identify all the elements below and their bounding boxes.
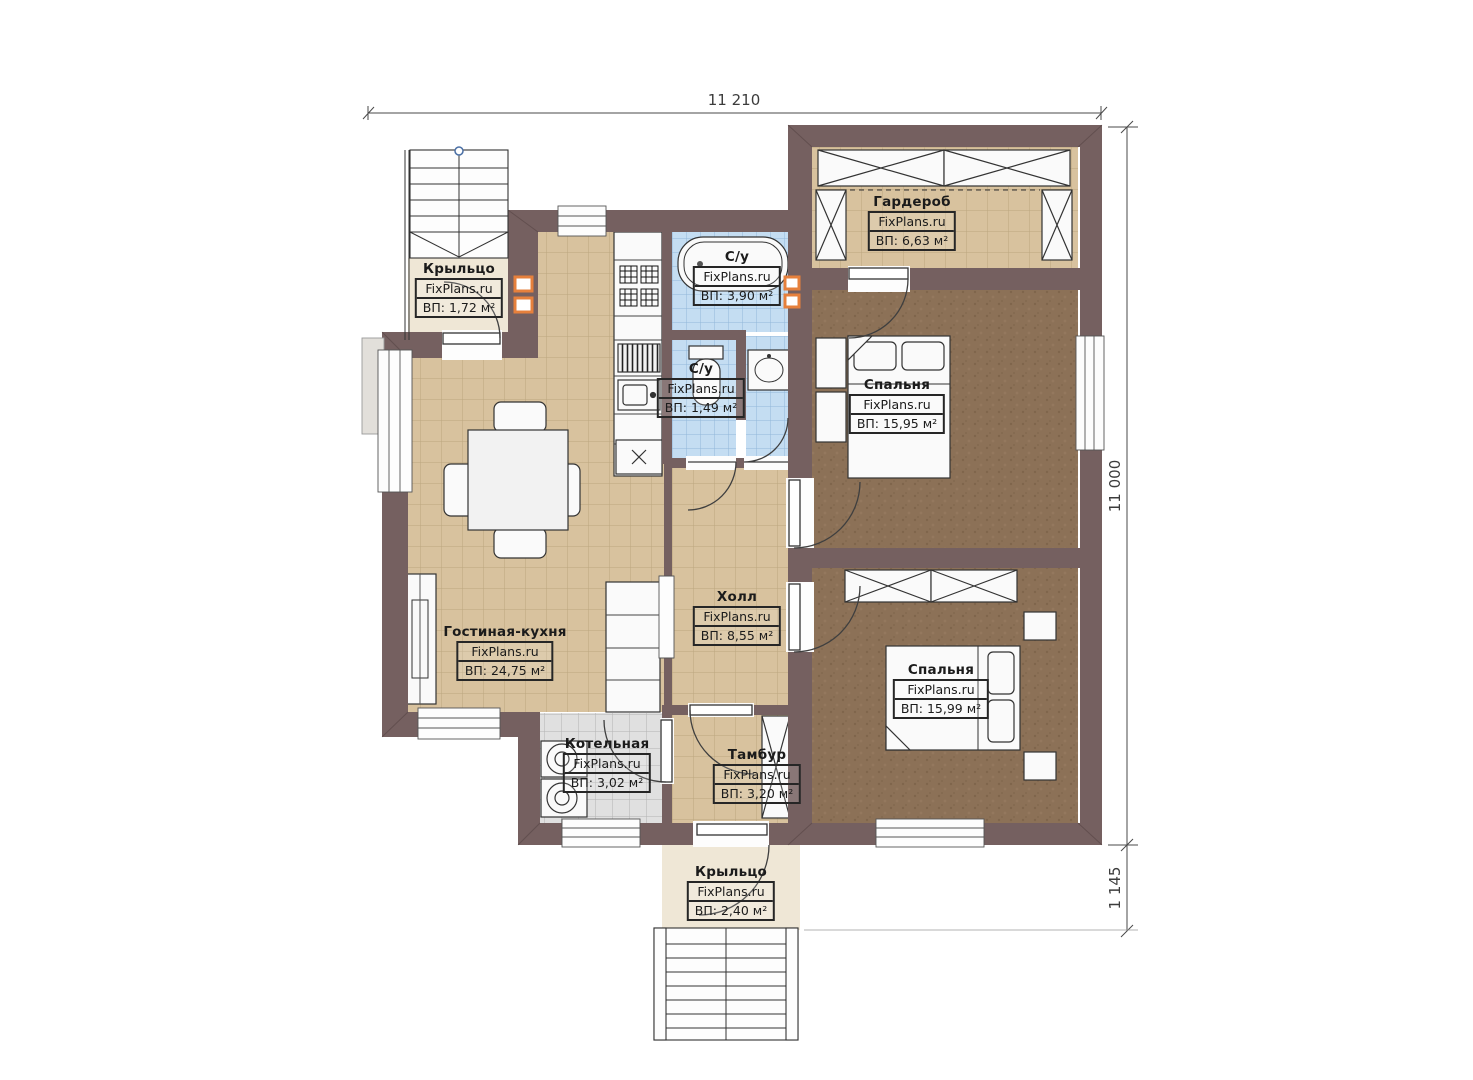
room-area: ВП: 3,20 м²: [715, 785, 799, 802]
room-name: Спальня: [908, 662, 974, 678]
room-info-box: FixPlans.ru ВП: 1,72 м²: [415, 278, 503, 318]
room-area: ВП: 1,49 м²: [659, 399, 743, 416]
room-area: ВП: 3,90 м²: [695, 287, 779, 304]
room-area: ВП: 2,40 м²: [689, 902, 773, 919]
room-label-living-kitchen: Гостиная-кухня FixPlans.ru ВП: 24,75 м²: [443, 624, 566, 681]
room-label-wc: С/у FixPlans.ru ВП: 1,49 м²: [657, 361, 745, 418]
room-label-bedroom-1: Спальня FixPlans.ru ВП: 15,95 м²: [849, 377, 945, 434]
room-label-porch-bottom: Крыльцо FixPlans.ru ВП: 2,40 м²: [687, 864, 775, 921]
room-name: Гостиная-кухня: [443, 624, 566, 640]
room-name: Холл: [717, 589, 757, 605]
room-info-box: FixPlans.ru ВП: 1,49 м²: [657, 378, 745, 418]
room-info-box: FixPlans.ru ВП: 3,20 м²: [713, 764, 801, 804]
room-label-bedroom-2: Спальня FixPlans.ru ВП: 15,99 м²: [893, 662, 989, 719]
brand-watermark: FixPlans.ru: [851, 396, 943, 415]
room-info-box: FixPlans.ru ВП: 15,95 м²: [849, 394, 945, 434]
room-label-porch-top: Крыльцо FixPlans.ru ВП: 1,72 м²: [415, 261, 503, 318]
room-name: Спальня: [864, 377, 930, 393]
room-info-box: FixPlans.ru ВП: 2,40 м²: [687, 881, 775, 921]
brand-watermark: FixPlans.ru: [565, 755, 649, 774]
room-labels: Крыльцо FixPlans.ru ВП: 1,72 м² Гардероб…: [0, 0, 1473, 1080]
room-area: ВП: 15,95 м²: [851, 415, 943, 432]
room-info-box: FixPlans.ru ВП: 15,99 м²: [893, 679, 989, 719]
room-area: ВП: 15,99 м²: [895, 700, 987, 717]
room-name: Котельная: [565, 736, 650, 752]
brand-watermark: FixPlans.ru: [695, 268, 779, 287]
room-label-boiler: Котельная FixPlans.ru ВП: 3,02 м²: [563, 736, 651, 793]
room-info-box: FixPlans.ru ВП: 3,02 м²: [563, 753, 651, 793]
room-label-bathroom: С/у FixPlans.ru ВП: 3,90 м²: [693, 249, 781, 306]
room-name: С/у: [725, 249, 749, 265]
room-area: ВП: 3,02 м²: [565, 774, 649, 791]
room-info-box: FixPlans.ru ВП: 8,55 м²: [693, 606, 781, 646]
room-area: ВП: 6,63 м²: [870, 232, 954, 249]
brand-watermark: FixPlans.ru: [715, 766, 799, 785]
brand-watermark: FixPlans.ru: [689, 883, 773, 902]
room-area: ВП: 1,72 м²: [417, 299, 501, 316]
brand-watermark: FixPlans.ru: [695, 608, 779, 627]
room-name: Крыльцо: [423, 261, 495, 277]
room-label-vestibule: Тамбур FixPlans.ru ВП: 3,20 м²: [713, 747, 801, 804]
room-name: Гардероб: [873, 194, 950, 210]
brand-watermark: FixPlans.ru: [870, 213, 954, 232]
brand-watermark: FixPlans.ru: [459, 643, 551, 662]
brand-watermark: FixPlans.ru: [895, 681, 987, 700]
room-name: С/у: [689, 361, 713, 377]
room-name: Тамбур: [728, 747, 786, 763]
brand-watermark: FixPlans.ru: [417, 280, 501, 299]
floor-plan-page: 11 210 11 000 1 145 Крыльцо FixPlans.ru …: [0, 0, 1473, 1080]
room-area: ВП: 8,55 м²: [695, 627, 779, 644]
room-label-hall: Холл FixPlans.ru ВП: 8,55 м²: [693, 589, 781, 646]
room-info-box: FixPlans.ru ВП: 24,75 м²: [457, 641, 553, 681]
room-name: Крыльцо: [695, 864, 767, 880]
room-info-box: FixPlans.ru ВП: 3,90 м²: [693, 266, 781, 306]
room-info-box: FixPlans.ru ВП: 6,63 м²: [868, 211, 956, 251]
room-area: ВП: 24,75 м²: [459, 662, 551, 679]
brand-watermark: FixPlans.ru: [659, 380, 743, 399]
room-label-wardrobe: Гардероб FixPlans.ru ВП: 6,63 м²: [868, 194, 956, 251]
